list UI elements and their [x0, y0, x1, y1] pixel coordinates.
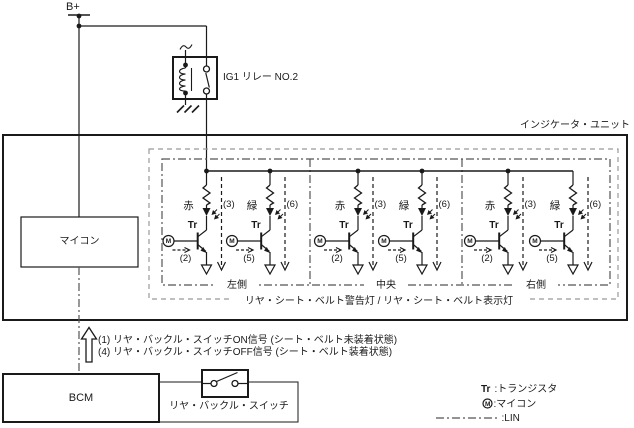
transistor-label: Tr — [247, 220, 265, 231]
micom-circle-letter: M — [227, 237, 237, 246]
led-color-label: 赤 — [180, 200, 198, 212]
base-signal-label: (5) — [390, 253, 412, 264]
lamp-sections-box — [162, 159, 610, 285]
base-signal-label: (2) — [476, 253, 498, 264]
legend-transistor: Tr:トランジスタ — [481, 384, 557, 395]
signal-line-1: (1) リヤ・バックル・スイッチON信号 (シート・ベルト未装着状態) — [98, 335, 397, 347]
led-color-label: 緑 — [546, 200, 564, 212]
led-color-label: 緑 — [243, 200, 261, 212]
led-color-label: 緑 — [395, 200, 413, 212]
micom-circle-letter: M — [315, 237, 325, 246]
micom-circle-letter: M — [164, 237, 174, 246]
section-label-right: 右側 — [514, 280, 558, 292]
base-signal-label: (2) — [175, 253, 197, 264]
transistor-label: Tr — [550, 220, 568, 231]
legend-tr-term: Tr — [481, 384, 490, 395]
legend-lin-desc: :LIN — [502, 413, 520, 424]
base-signal-label: (5) — [238, 253, 260, 264]
micom-circle-letter: M — [530, 237, 540, 246]
relay-label: IG1 リレー NO.2 — [223, 72, 298, 84]
sense-signal-label: (6) — [287, 199, 313, 210]
led-color-label: 赤 — [331, 200, 349, 212]
signal-up-arrow-icon — [82, 328, 97, 363]
relay-symbol — [173, 45, 217, 172]
transistor-label: Tr — [399, 220, 417, 231]
sense-signal-label: (6) — [590, 199, 616, 210]
legend-tr-desc: :トランジスタ — [494, 384, 557, 395]
base-signal-label: (5) — [541, 253, 563, 264]
wiring-diagram: B+ IG1 リレー NO.2 インジケータ・ユニット マイコン 赤 (3) T… — [0, 0, 634, 428]
section-label-left: 左側 — [215, 280, 259, 292]
lamp-caption: リヤ・シート・ベルト警告灯 / リヤ・シート・ベルト表示灯 — [229, 296, 529, 309]
supply-bus — [204, 169, 573, 174]
power-feed-lines — [68, 14, 207, 217]
micom-circle-letter: M — [379, 237, 389, 246]
signal-line-2: (4) リヤ・バックル・スイッチOFF信号 (シート・ベルト装着状態) — [98, 347, 392, 359]
legend-micom-letter: M — [483, 400, 492, 409]
buckle-switch-label: リヤ・バックル・スイッチ — [160, 401, 298, 413]
led-color-label: 赤 — [481, 200, 499, 212]
micom-circle-letter: M — [465, 237, 475, 246]
indicator-unit-box — [3, 135, 627, 320]
sense-signal-label: (6) — [439, 199, 465, 210]
legend-micom-desc: :マイコン — [494, 399, 537, 410]
transistor-label: Tr — [335, 220, 353, 231]
wiring-diagram-canvas — [0, 0, 634, 428]
bcm-label: BCM — [3, 392, 159, 404]
transistor-label: Tr — [485, 220, 503, 231]
led-driver-cells — [163, 171, 592, 274]
section-label-center: 中央 — [364, 280, 408, 292]
transistor-label: Tr — [184, 220, 202, 231]
micom-label: マイコン — [21, 236, 138, 248]
base-signal-label: (2) — [326, 253, 348, 264]
ground-icon — [177, 106, 199, 113]
b-plus-label: B+ — [66, 1, 80, 13]
unit-title: インジケータ・ユニット — [498, 120, 630, 132]
